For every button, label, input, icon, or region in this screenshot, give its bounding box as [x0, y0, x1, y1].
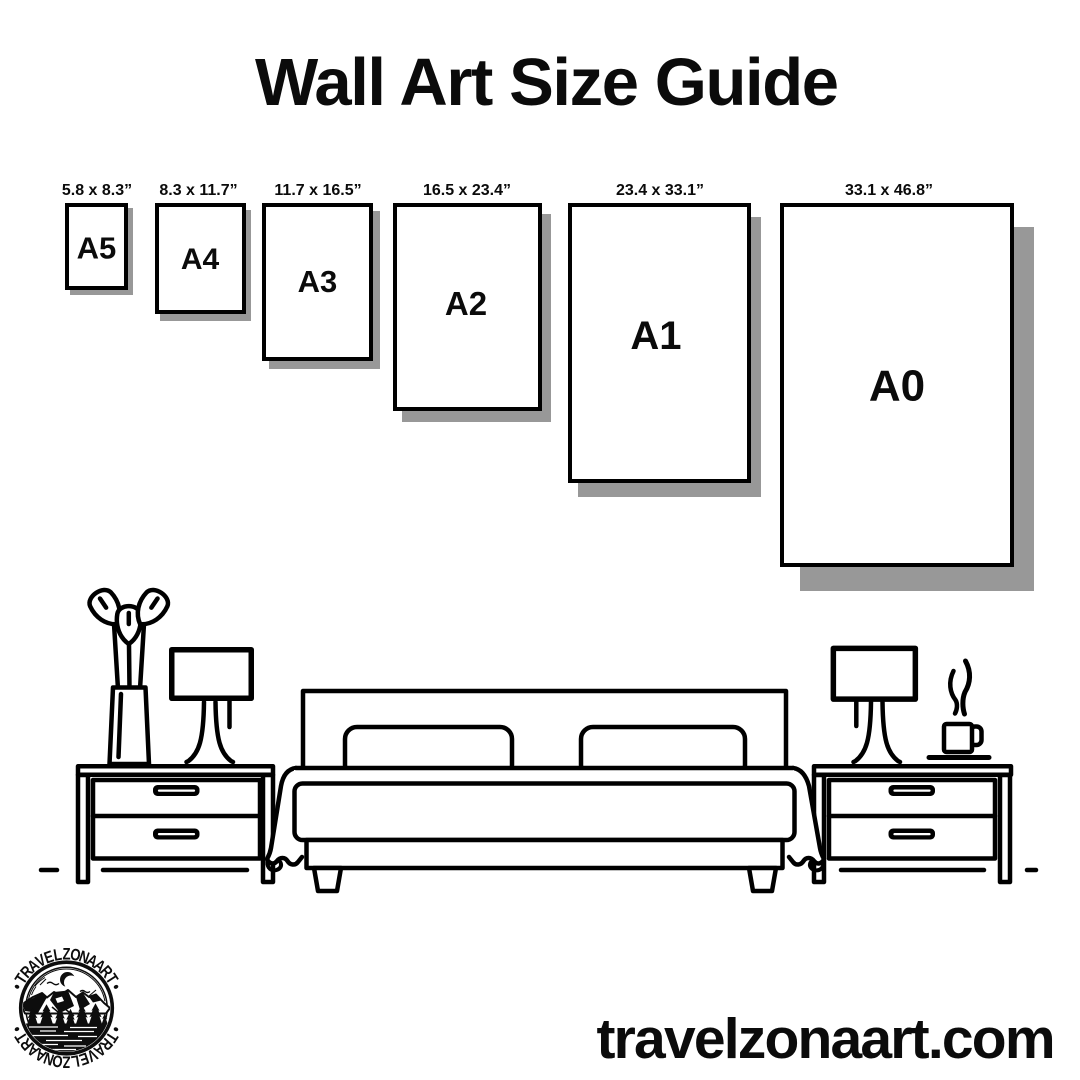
svg-text:travelzonaart.com: travelzonaart.com — [597, 1007, 1056, 1071]
svg-text:A4: A4 — [181, 243, 220, 276]
svg-text:8.3 x 11.7”: 8.3 x 11.7” — [159, 182, 237, 199]
svg-text:33.1 x 46.8”: 33.1 x 46.8” — [845, 182, 933, 199]
svg-text:A0: A0 — [869, 362, 925, 411]
svg-text:Wall Art Size Guide: Wall Art Size Guide — [255, 45, 839, 120]
svg-text:23.4 x 33.1”: 23.4 x 33.1” — [616, 182, 704, 199]
svg-text:A5: A5 — [77, 230, 117, 265]
svg-text:A2: A2 — [445, 285, 487, 322]
svg-text:16.5 x 23.4”: 16.5 x 23.4” — [423, 182, 511, 199]
svg-text:11.7 x 16.5”: 11.7 x 16.5” — [274, 182, 361, 199]
svg-text:A1: A1 — [630, 314, 681, 358]
svg-text:A3: A3 — [298, 264, 338, 299]
svg-text:5.8 x 8.3”: 5.8 x 8.3” — [62, 182, 132, 199]
